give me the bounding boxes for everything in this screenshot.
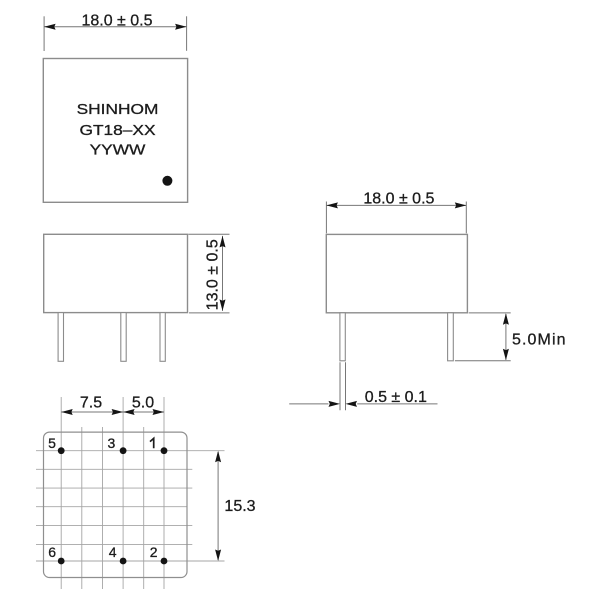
svg-text:YYWW: YYWW bbox=[90, 142, 147, 159]
svg-text:5.0Min: 5.0Min bbox=[512, 331, 567, 348]
svg-text:13.0 ± 0.5: 13.0 ± 0.5 bbox=[205, 239, 222, 310]
svg-text:18.0 ± 0.5: 18.0 ± 0.5 bbox=[363, 190, 434, 207]
svg-text:3: 3 bbox=[108, 435, 116, 451]
svg-text:0.5 ± 0.1: 0.5 ± 0.1 bbox=[365, 389, 427, 406]
svg-text:15.3: 15.3 bbox=[224, 498, 255, 515]
svg-text:SHINHOM: SHINHOM bbox=[77, 101, 159, 118]
svg-text:GT18–XX: GT18–XX bbox=[79, 122, 155, 139]
svg-text:5: 5 bbox=[48, 435, 56, 451]
svg-text:6: 6 bbox=[48, 544, 56, 560]
svg-text:18.0 ± 0.5: 18.0 ± 0.5 bbox=[81, 12, 152, 29]
svg-text:4: 4 bbox=[109, 544, 117, 560]
svg-text:7.5: 7.5 bbox=[80, 395, 102, 412]
svg-text:5.0: 5.0 bbox=[132, 395, 154, 412]
svg-text:2: 2 bbox=[150, 544, 158, 560]
